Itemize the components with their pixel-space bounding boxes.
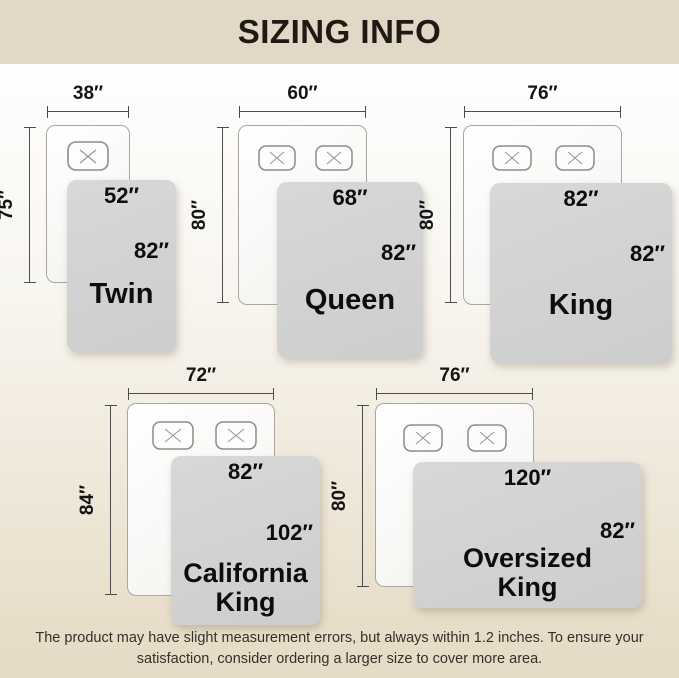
size-name-label: California King [162, 559, 329, 617]
dimension-line [464, 111, 621, 112]
blanket-length-label: 82″ [600, 518, 635, 544]
size-name-label: Queen [277, 285, 423, 316]
dimension-line [222, 127, 223, 303]
width-dimension-line: 76″ [376, 388, 533, 400]
length-dimension-line: 80″ [445, 127, 457, 303]
width-dimension-line: 76″ [464, 106, 621, 118]
pillow-icon [403, 424, 443, 452]
bed-width-label: 38″ [47, 83, 129, 105]
length-dimension-line: 80″ [217, 127, 229, 303]
page-title: SIZING INFO [238, 13, 442, 51]
pillow-icon [67, 141, 109, 171]
pillow-icon [215, 421, 257, 450]
width-dimension-line: 60″ [239, 106, 366, 118]
dimension-line [362, 405, 363, 587]
blanket: 52″ 82″ Twin [67, 180, 176, 352]
dimension-line [239, 111, 366, 112]
bed-width-label: 76″ [376, 365, 533, 387]
blanket-length-label: 82″ [134, 238, 169, 264]
dimension-line [29, 127, 30, 283]
bed-length-label: 80″ [417, 200, 439, 230]
size-name-label: King [490, 290, 672, 321]
dimension-line [47, 111, 129, 112]
dimension-line [110, 405, 111, 595]
blanket: 120″ 82″ Oversized King [413, 462, 642, 608]
disclaimer-line-1: The product may have slight measurement … [0, 628, 679, 650]
pillow-icon [315, 145, 353, 171]
bed-width-label: 60″ [239, 83, 366, 105]
length-dimension-line: 80″ [357, 405, 369, 587]
header-banner: SIZING INFO [0, 0, 679, 64]
dimension-line [128, 393, 274, 394]
blanket-length-label: 82″ [381, 240, 416, 266]
bed-length-label: 80″ [329, 481, 351, 511]
length-dimension-line: 75″ [24, 127, 36, 283]
disclaimer-line-2: satisfaction, consider ordering a larger… [0, 649, 679, 671]
blanket-width-label: 52″ [67, 183, 176, 209]
sizing-info-page: SIZING INFO 38″ 75″ 52″ 82″ Twin 60″ 80″ [0, 0, 679, 678]
size-name-label: Twin [67, 279, 176, 310]
blanket: 82″ 82″ King [490, 183, 672, 363]
bed-length-label: 84″ [77, 485, 99, 515]
pillow-icon [258, 145, 296, 171]
bed-width-label: 76″ [464, 83, 621, 105]
length-dimension-line: 84″ [105, 405, 117, 595]
width-dimension-line: 72″ [128, 388, 274, 400]
bed-length-label: 80″ [189, 200, 211, 230]
blanket-width-label: 82″ [490, 186, 672, 212]
dimension-line [450, 127, 451, 303]
pillow-icon [492, 145, 532, 171]
pillow-icon [555, 145, 595, 171]
blanket: 82″ 102″ California King [171, 456, 320, 625]
pillow-icon [152, 421, 194, 450]
dimension-line [376, 393, 533, 394]
blanket-width-label: 68″ [277, 185, 423, 211]
blanket-width-label: 82″ [171, 459, 320, 485]
blanket: 68″ 82″ Queen [277, 182, 423, 358]
bed-length-label: 75″ [0, 190, 18, 220]
pillow-icon [467, 424, 507, 452]
blanket-width-label: 120″ [413, 465, 642, 491]
disclaimer-text: The product may have slight measurement … [0, 628, 679, 672]
size-name-label: Oversized King [459, 544, 596, 602]
blanket-length-label: 102″ [266, 520, 313, 546]
blanket-length-label: 82″ [630, 241, 665, 267]
width-dimension-line: 38″ [47, 106, 129, 118]
bed-width-label: 72″ [128, 365, 274, 387]
